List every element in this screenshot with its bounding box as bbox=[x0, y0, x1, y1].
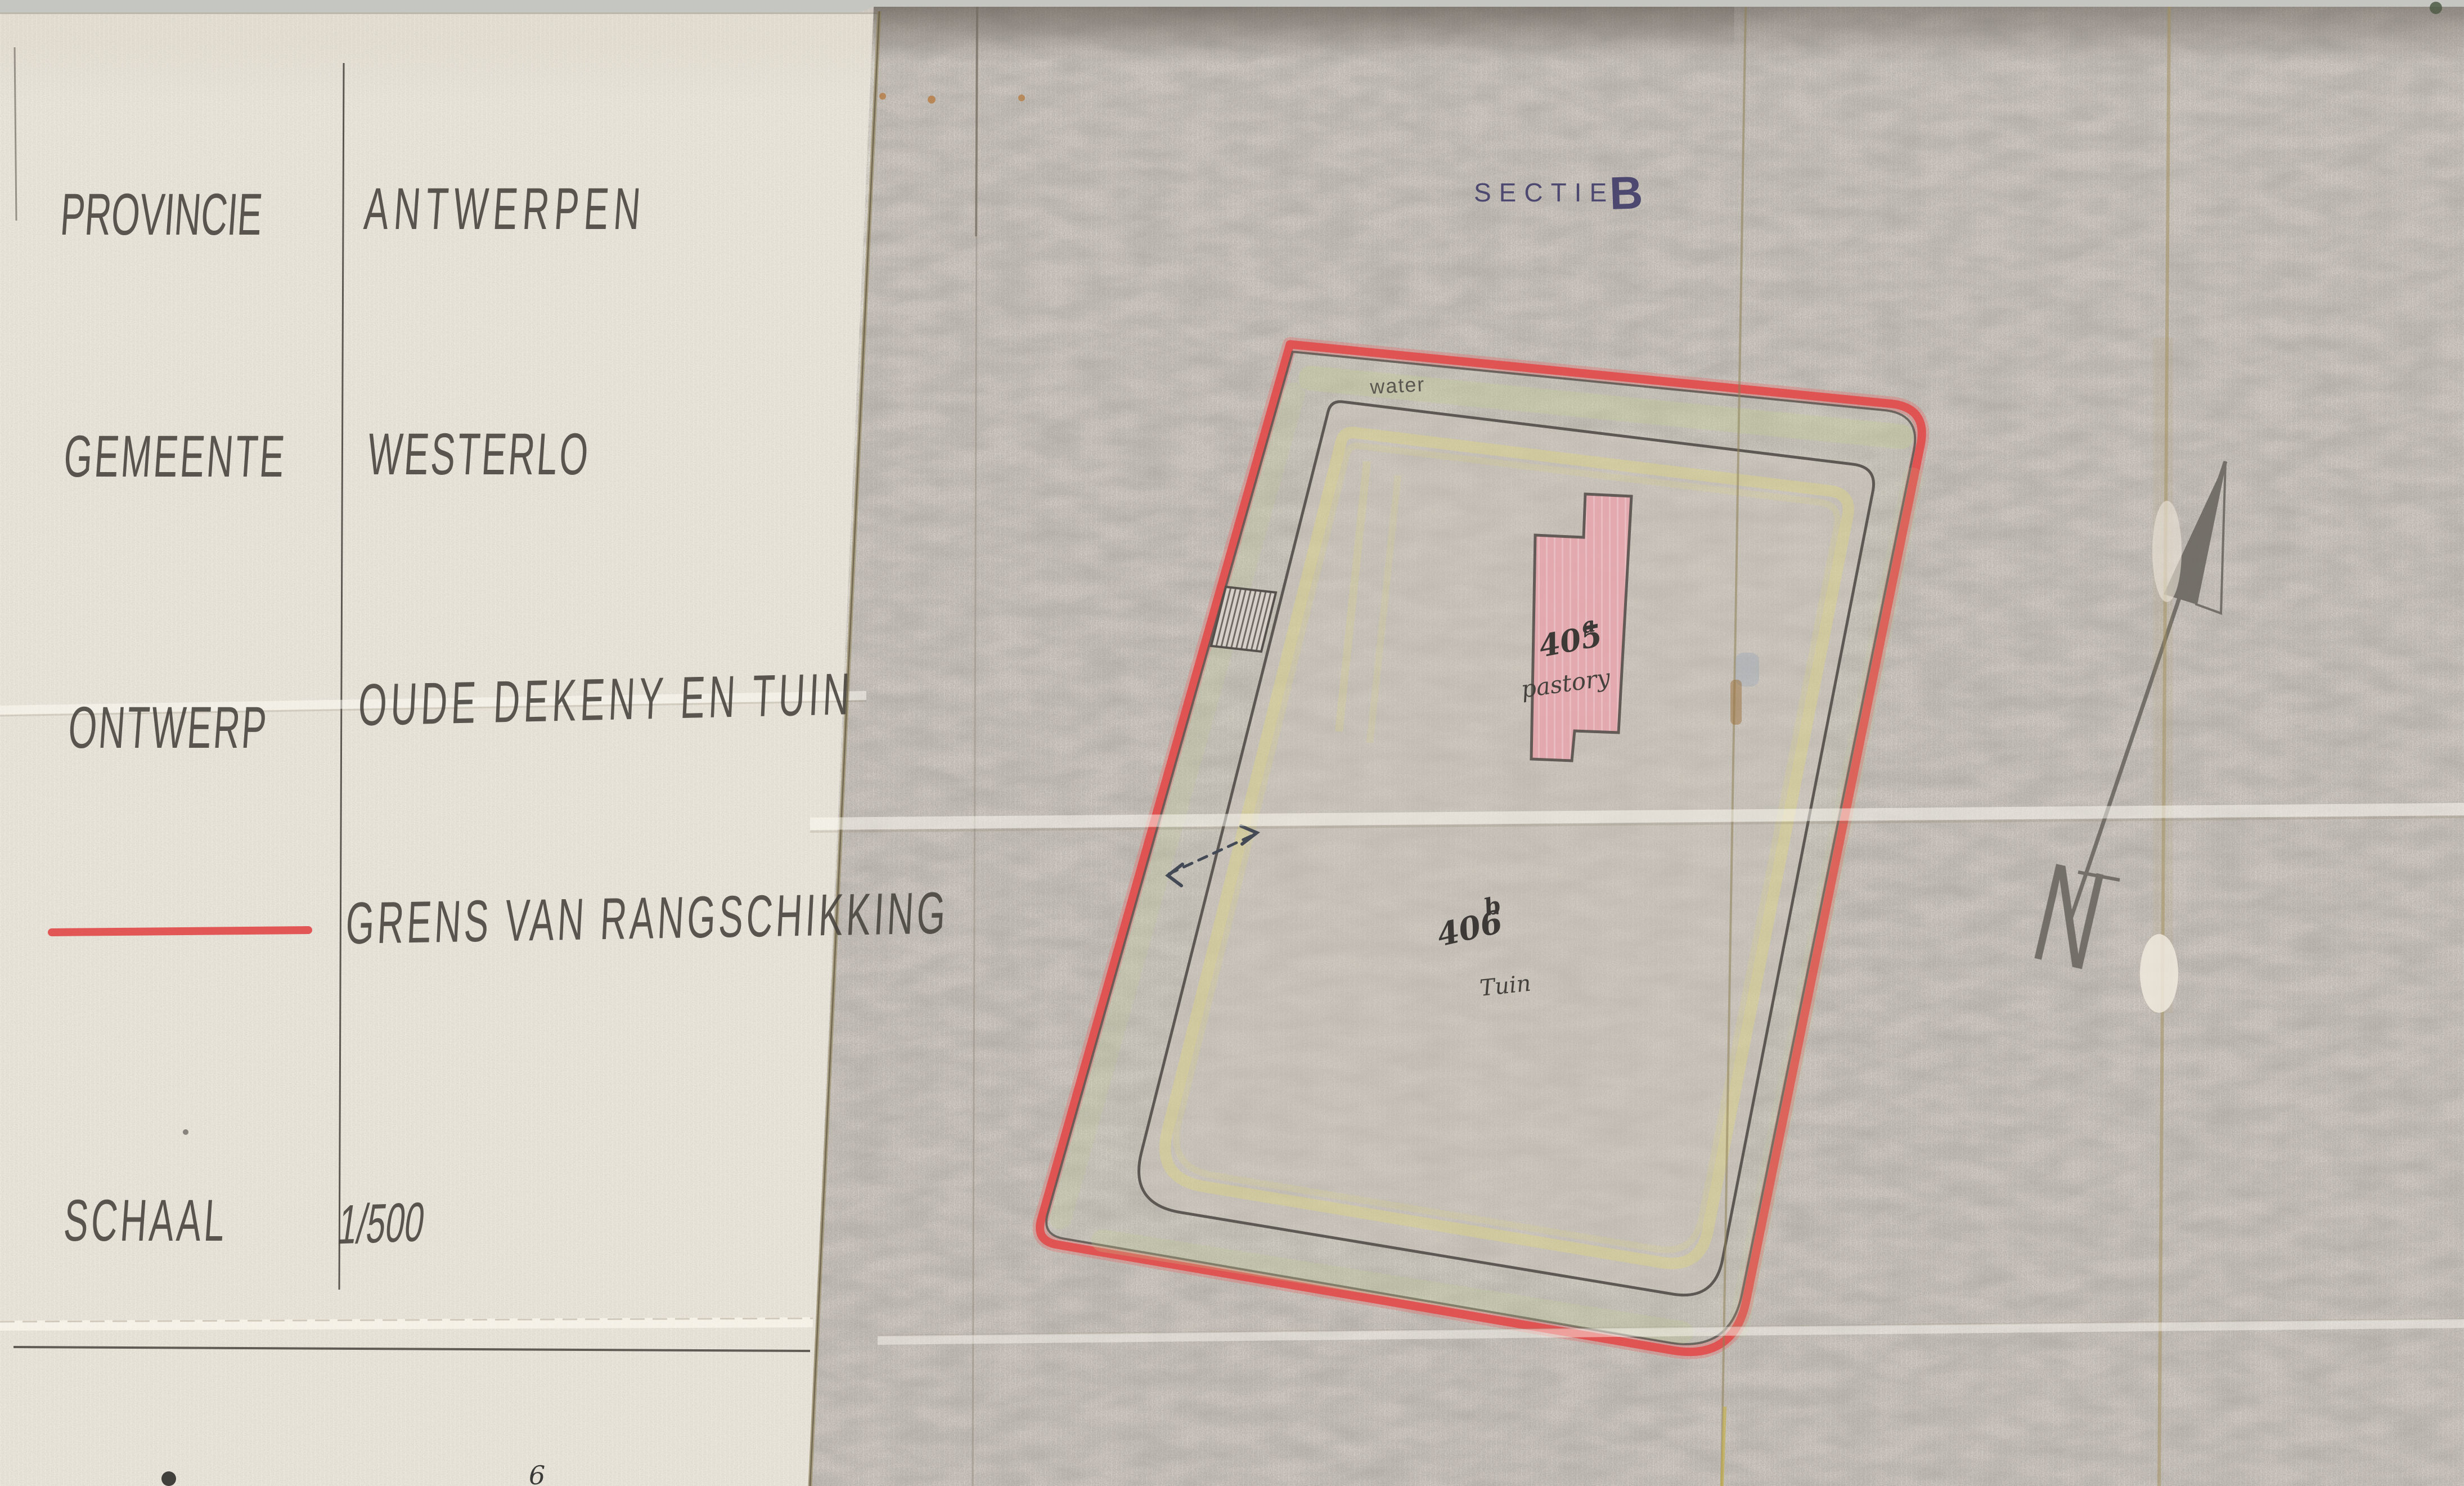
row-ontwerp-value: OUDE DEKENY EN TUIN bbox=[357, 661, 855, 739]
title-tear-band bbox=[0, 1322, 813, 1326]
bottom-edge-blot bbox=[161, 1471, 176, 1486]
fold-light-patch bbox=[2140, 934, 2178, 1013]
fold-light-patch-2 bbox=[2152, 501, 2182, 602]
row-gemeente-value: WESTERLO bbox=[366, 421, 592, 488]
row-grens-value: GRENS VAN RANGSCHIKKING bbox=[344, 879, 950, 958]
row-schaal-value: 1/500 bbox=[334, 1190, 429, 1257]
rust-spot bbox=[1018, 95, 1025, 101]
row-gemeente-label: GEMEENTE bbox=[62, 423, 289, 491]
ink-speck bbox=[183, 1129, 188, 1135]
rust-spot bbox=[928, 96, 936, 104]
bottom-edge-stray-mark: 6 bbox=[529, 1460, 545, 1486]
sectie-label: SECTIE bbox=[1474, 178, 1615, 207]
parcel-406-name: Tuin bbox=[1478, 971, 1532, 1002]
corner-green-mark bbox=[2430, 2, 2442, 14]
water-label: water bbox=[1369, 372, 1426, 398]
brown-smudge bbox=[1730, 680, 1742, 725]
scanned-cadastral-plan: 6 bbox=[0, 0, 2464, 1486]
row-provincie-value: ANTWERPEN bbox=[362, 176, 648, 243]
row-ontwerp-label: ONTWERP bbox=[66, 694, 271, 762]
row-schaal-label: SCHAAL bbox=[62, 1187, 230, 1255]
fold-line-left-top bbox=[976, 7, 977, 236]
fold-right-smear bbox=[2153, 338, 2173, 1013]
row-provincie-label: PROVINCIE bbox=[59, 181, 265, 249]
sectie-value: B bbox=[1608, 167, 1643, 219]
rust-spot bbox=[879, 93, 886, 100]
